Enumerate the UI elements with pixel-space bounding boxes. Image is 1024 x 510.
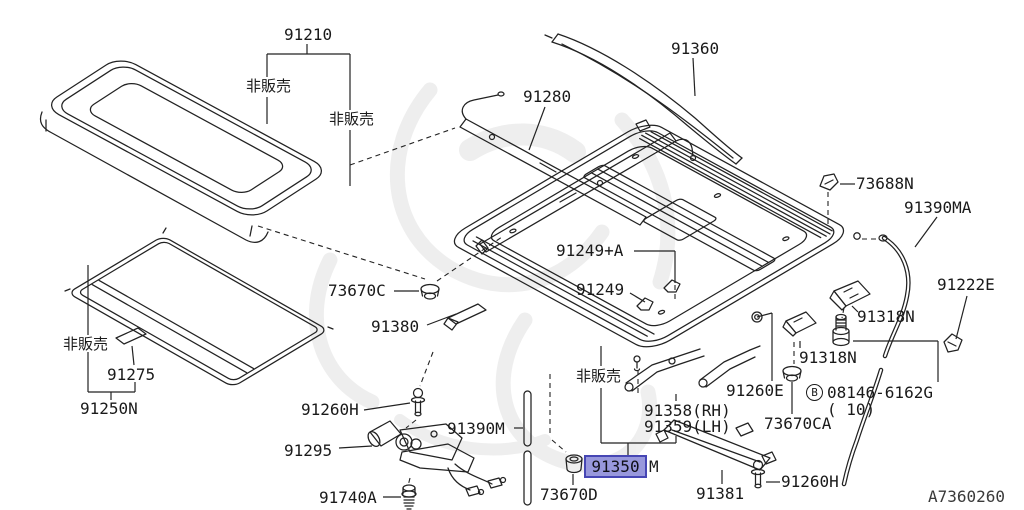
pin-91260h-right-art (752, 461, 765, 488)
part-label-73688N[interactable]: 73688N (856, 175, 914, 192)
not-for-sale-note-1: 非販売 (246, 78, 291, 95)
part-label-91210[interactable]: 91210 (284, 26, 332, 43)
part-label-91350-highlighted[interactable]: 91350 (584, 455, 647, 478)
part-label-91250N[interactable]: 91250N (80, 400, 138, 417)
not-for-sale-note-4: 非販売 (63, 336, 108, 353)
part-label-73670CA[interactable]: 73670CA (764, 415, 831, 432)
part-label-91740A[interactable]: 91740A (319, 489, 377, 506)
part-label-91318N-lower[interactable]: 91318N (799, 349, 857, 366)
part-qty-08146: ( 10) (827, 401, 875, 418)
part-label-91222E[interactable]: 91222E (937, 276, 995, 293)
part-label-08146-6162G[interactable]: 08146-6162G (827, 384, 933, 401)
part-label-91318N-upper[interactable]: 91318N (857, 308, 915, 325)
sunshade-handle-art (116, 328, 146, 344)
drain-spout-art (854, 233, 860, 239)
diagram-line-art (0, 0, 1024, 510)
bracket-91318n-upper-art (830, 281, 870, 310)
part-label-91390MA[interactable]: 91390MA (904, 199, 971, 216)
part-label-91390M[interactable]: 91390M (447, 420, 505, 437)
part-label-91260E[interactable]: 91260E (726, 382, 784, 399)
part-label-91275[interactable]: 91275 (107, 366, 155, 383)
stopper-91380-art (444, 304, 486, 330)
part-label-91260H-right[interactable]: 91260H (781, 473, 839, 490)
not-for-sale-note-3: 非販売 (576, 368, 621, 385)
parts-diagram-sunroof: 91210 非販売 非販売 91280 91360 73688N 91390MA… (0, 0, 1024, 510)
not-for-sale-note-2: 非販売 (329, 111, 374, 128)
part-label-91249[interactable]: 91249 (576, 281, 624, 298)
part-label-91249A[interactable]: 91249+A (556, 242, 623, 259)
part-label-91260H-left[interactable]: 91260H (301, 401, 359, 418)
circled-b-icon: B (806, 384, 823, 401)
front-rail-art (460, 92, 646, 225)
part-label-91359[interactable]: 91359(LH) (644, 418, 731, 435)
bolt-08146-art (833, 315, 849, 346)
part-label-91360[interactable]: 91360 (671, 40, 719, 57)
part-label-91350-suffix: M (649, 458, 659, 475)
pin-91260h-left-art (412, 389, 425, 416)
clip-73688n-art (820, 174, 838, 190)
bracket-91318n-lower-art (783, 312, 816, 336)
part-label-91295[interactable]: 91295 (284, 442, 332, 459)
clip-91222e-art (944, 334, 962, 352)
part-label-73670C[interactable]: 73670C (328, 282, 386, 299)
part-label-91280[interactable]: 91280 (523, 88, 571, 105)
grommet-73670ca-art (783, 367, 801, 382)
drawing-code: A7360260 (928, 487, 1005, 506)
bolt-91740a-art (402, 485, 416, 509)
part-label-91380[interactable]: 91380 (371, 318, 419, 335)
part-label-91381[interactable]: 91381 (696, 485, 744, 502)
sunshade-art (65, 228, 333, 387)
grommet-73670c-art (421, 285, 439, 300)
part-label-73670D[interactable]: 73670D (540, 486, 598, 503)
